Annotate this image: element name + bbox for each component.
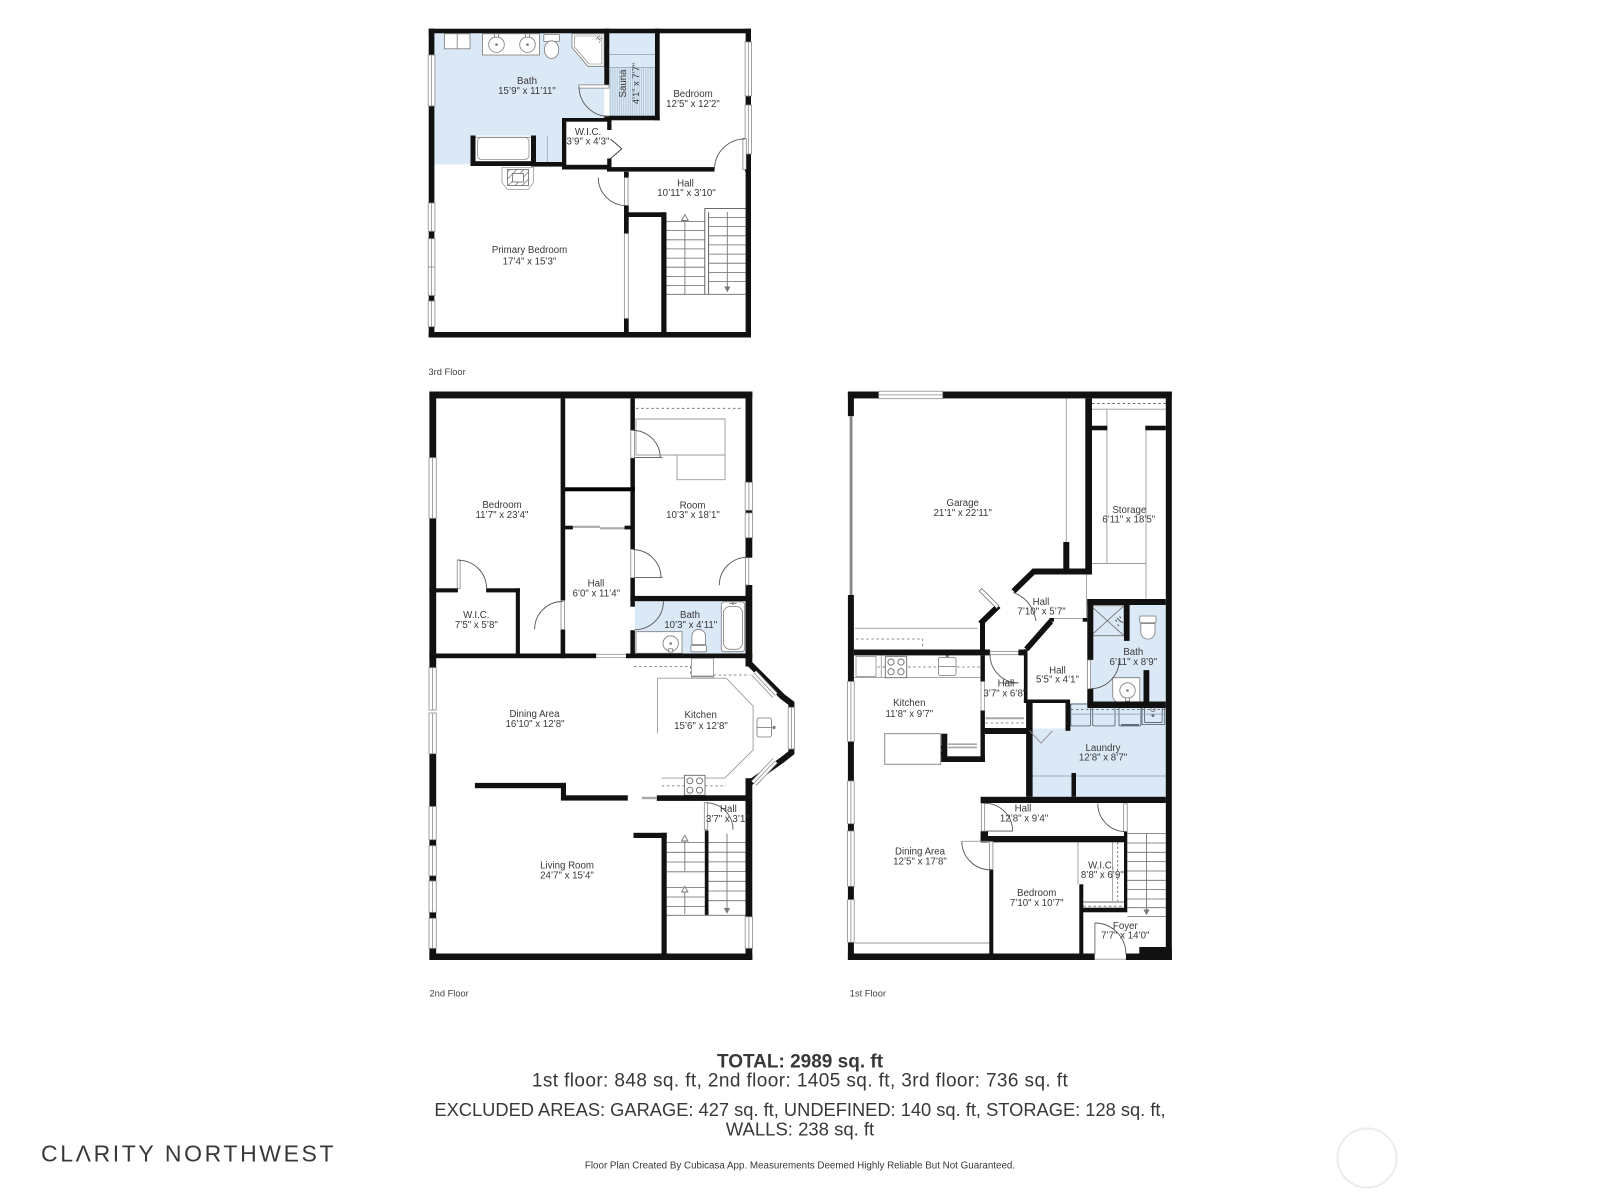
svg-text:Kitchen: Kitchen [893, 698, 925, 709]
svg-text:10’3" x 4’11": 10’3" x 4’11" [664, 620, 718, 631]
svg-text:21’1" x 22’11": 21’1" x 22’11" [933, 508, 992, 519]
svg-text:6’11" x 18’5": 6’11" x 18’5" [1102, 515, 1156, 526]
svg-text:12’8" x 8’7": 12’8" x 8’7" [1079, 753, 1128, 764]
svg-text:5’5" x 4’1": 5’5" x 4’1" [1036, 674, 1080, 685]
svg-text:12’5" x 12’2": 12’5" x 12’2" [666, 99, 720, 110]
svg-text:7’7" x 14’0": 7’7" x 14’0" [1101, 931, 1150, 942]
svg-text:15’9" x 11’11": 15’9" x 11’11" [498, 86, 556, 97]
svg-text:8’8" x 6’9": 8’8" x 6’9" [1081, 870, 1125, 881]
svg-text:17’4" x 15’3": 17’4" x 15’3" [503, 257, 557, 268]
svg-text:3’7" x 6’8": 3’7" x 6’8" [983, 688, 1027, 699]
svg-text:12’5" x 17’8": 12’5" x 17’8" [893, 857, 947, 868]
svg-text:EXCLUDED AREAS: GARAGE: 427 sq: EXCLUDED AREAS: GARAGE: 427 sq. ft, UNDE… [434, 1099, 1165, 1120]
svg-text:Floor Plan Created By Cubicasa: Floor Plan Created By Cubicasa App. Meas… [585, 1161, 1015, 1172]
svg-text:6’11" x 8’9": 6’11" x 8’9" [1109, 657, 1157, 668]
svg-text:3rd Floor: 3rd Floor [429, 367, 466, 377]
svg-text:Kitchen: Kitchen [685, 710, 717, 721]
svg-text:Primary Bedroom: Primary Bedroom [492, 245, 567, 256]
svg-text:CLΛRITY NORTHWEST: CLΛRITY NORTHWEST [41, 1141, 336, 1167]
svg-text:7’10" x 10’7": 7’10" x 10’7" [1010, 898, 1064, 909]
svg-text:TOTAL: 2989 sq. ft: TOTAL: 2989 sq. ft [717, 1052, 884, 1073]
svg-text:11’8" x 9’7": 11’8" x 9’7" [885, 709, 933, 720]
svg-text:Garage: Garage [947, 498, 979, 509]
svg-text:1st floor: 848 sq. ft, 2nd flo: 1st floor: 848 sq. ft, 2nd floor: 1405 s… [532, 1071, 1069, 1092]
svg-text:7’5" x 5’8": 7’5" x 5’8" [455, 620, 499, 631]
svg-text:WALLS: 238 sq. ft: WALLS: 238 sq. ft [726, 1118, 874, 1139]
svg-text:6’0" x 11’4": 6’0" x 11’4" [572, 589, 620, 600]
svg-text:15’6" x 12’8": 15’6" x 12’8" [674, 721, 728, 732]
svg-text:10’3" x 18’1": 10’3" x 18’1" [666, 510, 720, 521]
svg-text:24’7" x 15’4": 24’7" x 15’4" [540, 871, 594, 882]
svg-text:3’9" x 4’3": 3’9" x 4’3" [567, 137, 611, 148]
svg-text:11’7" x 23’4": 11’7" x 23’4" [475, 510, 529, 521]
svg-text:7’10" x 5’7": 7’10" x 5’7" [1017, 607, 1066, 618]
svg-text:16’10" x 12’8": 16’10" x 12’8" [505, 719, 565, 730]
svg-text:10’11" x 3’10": 10’11" x 3’10" [657, 188, 716, 199]
svg-text:3’7" x 3’1": 3’7" x 3’1" [706, 814, 750, 825]
svg-text:2nd Floor: 2nd Floor [430, 988, 469, 998]
svg-text:Sauna: Sauna [618, 69, 629, 98]
svg-text:12’8" x 9’4": 12’8" x 9’4" [1000, 814, 1049, 825]
svg-text:4’1" x 7’7": 4’1" x 7’7" [631, 63, 641, 104]
svg-text:1st Floor: 1st Floor [850, 988, 886, 998]
